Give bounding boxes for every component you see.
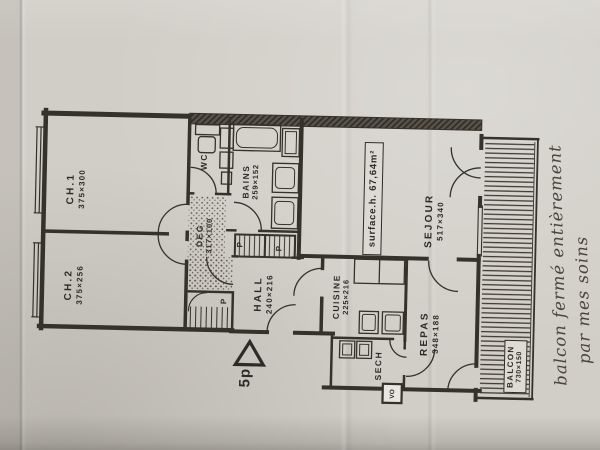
floor-plan: CH.1 375×300 CH.2 375×256 WC BAINS 259×1… — [0, 0, 600, 450]
toilet-bowl — [198, 137, 215, 153]
entrance-marker-triangle — [235, 341, 264, 365]
closet-label-p: P — [235, 241, 244, 247]
washing-machine — [356, 341, 371, 358]
room-label-cuisine: CUISINE 225×216 — [331, 274, 351, 319]
room-label-ch2: CH.2 375×256 — [63, 265, 85, 305]
apartment-type-label: 5p — [236, 368, 253, 388]
room-label-sejour: SEJOUR 517×340 — [423, 193, 446, 248]
washing-machine — [339, 341, 354, 358]
room-label-wc: WC — [199, 153, 210, 170]
room-label-bains: BAINS 259×152 — [240, 164, 260, 200]
room-label-hall: HALL 240×216 — [253, 274, 275, 314]
room-label-balcon: BALCON 730×150 — [503, 340, 527, 393]
closet-label-p: P — [219, 298, 228, 304]
closet-label-p: P — [274, 245, 283, 251]
floor-plan-photo: CH.1 375×300 CH.2 375×256 WC BAINS 259×1… — [0, 0, 600, 450]
room-label-ch1: CH.1 375×300 — [65, 169, 87, 209]
handwritten-note-line2: par mes soins — [572, 236, 594, 365]
room-label-repas: REPAS 348×188 — [419, 311, 442, 356]
room-label-sech: SECH — [373, 351, 384, 381]
toilet-tank — [195, 124, 219, 135]
room-label-deg: DEG 317×100 — [194, 218, 214, 254]
refuse-chute-label: VO — [389, 389, 396, 399]
surface-area-label: surface.h. 67,64m² — [362, 142, 384, 256]
